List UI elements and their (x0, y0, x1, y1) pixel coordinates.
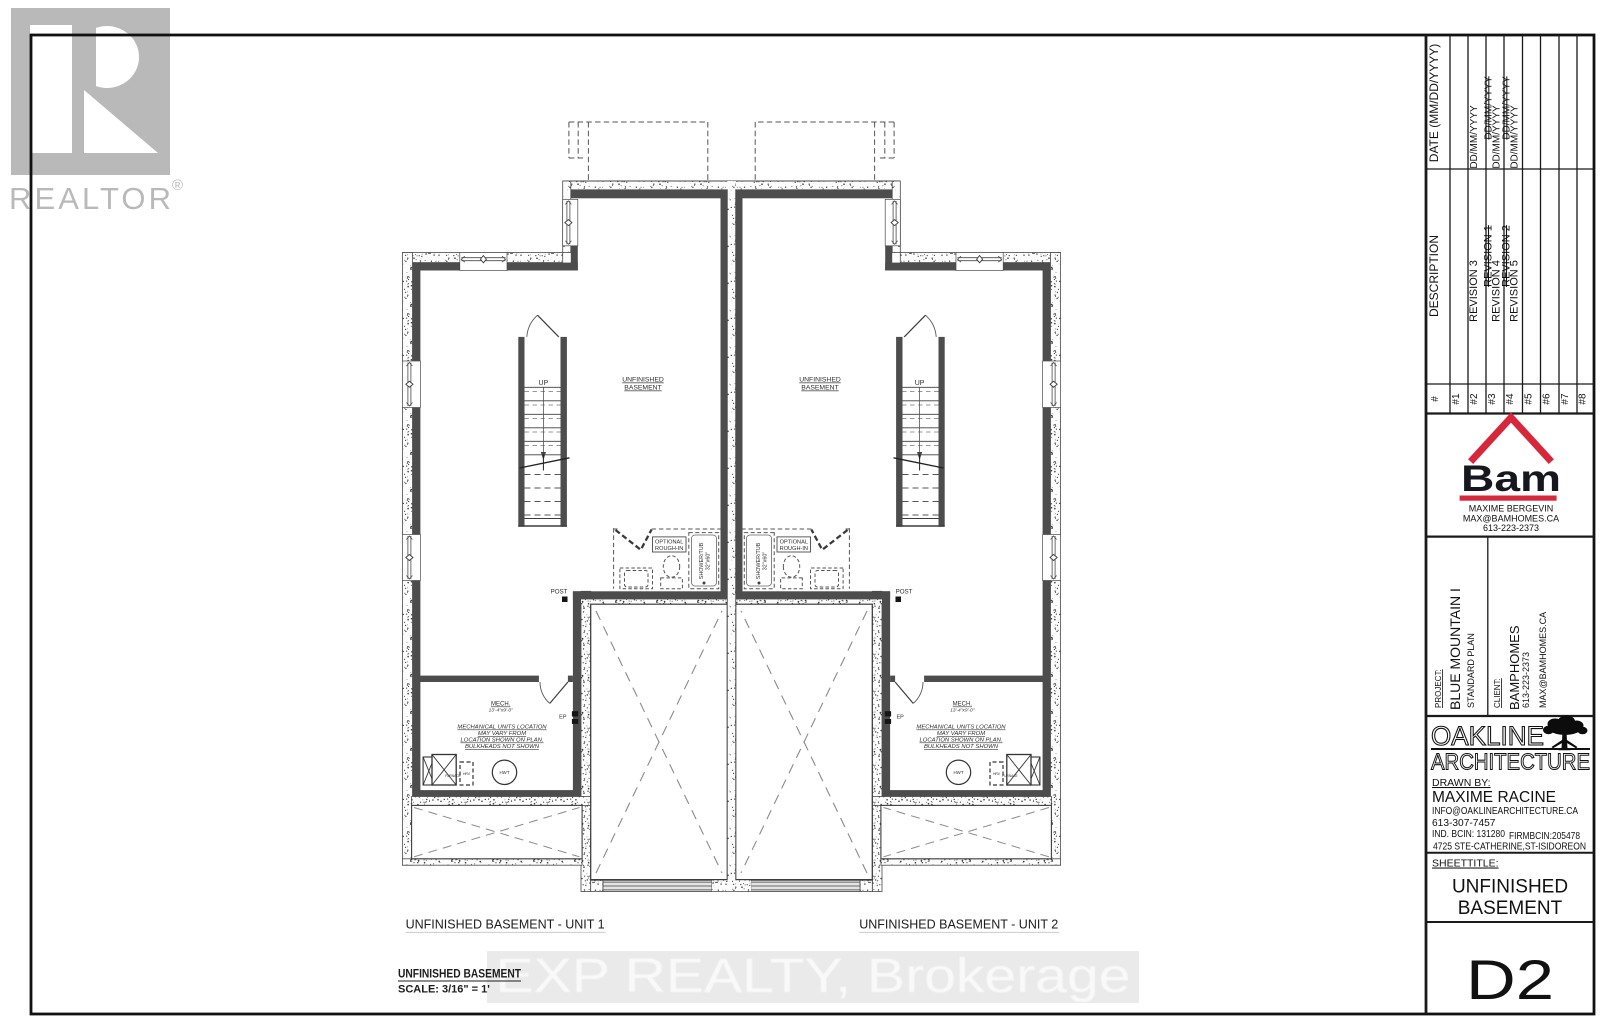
svg-text:BULKHEADS NOT SHOWN: BULKHEADS NOT SHOWN (924, 744, 999, 750)
svg-text:UP: UP (539, 380, 549, 387)
svg-text:#: # (1430, 396, 1441, 402)
svg-text:MECH.: MECH. (953, 702, 973, 708)
svg-text:UNFINISHED: UNFINISHED (799, 377, 841, 384)
svg-text:D2: D2 (1466, 948, 1554, 1011)
svg-text:OPTIONAL: OPTIONAL (655, 540, 683, 546)
svg-text:EP: EP (897, 715, 905, 721)
svg-text:DRAWN BY:: DRAWN BY: (1432, 777, 1491, 789)
svg-text:MAY VARY FROM: MAY VARY FROM (937, 731, 985, 737)
svg-text:UNFINISHED: UNFINISHED (622, 377, 664, 384)
svg-text:MAX@BAMHOMES.CA: MAX@BAMHOMES.CA (1538, 612, 1548, 708)
svg-text:613-223-2373: 613-223-2373 (1483, 523, 1539, 533)
svg-text:ROUGH-IN: ROUGH-IN (655, 546, 683, 552)
svg-text:UP: UP (915, 380, 925, 387)
svg-text:OPTIONAL: OPTIONAL (780, 540, 808, 546)
svg-text:FURNACE: FURNACE (445, 774, 460, 778)
svg-text:32"x60": 32"x60" (706, 552, 712, 571)
svg-text:Bam: Bam (1461, 458, 1561, 499)
svg-text:#5: #5 (1524, 393, 1535, 405)
svg-text:OAKLINE: OAKLINE (1431, 721, 1544, 751)
svg-text:BASEMENT: BASEMENT (801, 385, 838, 392)
svg-text:UNFINISHED BASEMENT - UNIT 2: UNFINISHED BASEMENT - UNIT 2 (859, 917, 1058, 932)
svg-text:13'-4"x9'-0": 13'-4"x9'-0" (489, 708, 513, 714)
svg-text:CLIENT:: CLIENT: (1493, 678, 1502, 708)
svg-text:MAXIME BERGEVIN: MAXIME BERGEVIN (1469, 504, 1554, 514)
svg-text:MAX@BAMHOMES.CA: MAX@BAMHOMES.CA (1463, 514, 1559, 524)
svg-text:LOCATION SHOWN ON PLAN.: LOCATION SHOWN ON PLAN. (460, 738, 543, 744)
svg-text:MAXIME RACINE: MAXIME RACINE (1432, 789, 1556, 806)
svg-text:FIRMBCIN:205478: FIRMBCIN:205478 (1509, 831, 1580, 842)
svg-text:ROUGH-IN: ROUGH-IN (780, 546, 808, 552)
svg-text:32"x60": 32"x60" (763, 552, 769, 571)
svg-text:INFO@OAKLINEARCHITECTURE.CA: INFO@OAKLINEARCHITECTURE.CA (1432, 806, 1578, 817)
svg-text:MECHANICAL UNITS LOCATION: MECHANICAL UNITS LOCATION (457, 725, 547, 731)
svg-text:UNFINISHED: UNFINISHED (1452, 877, 1568, 898)
svg-text:DD/MM/YYYY: DD/MM/YYYY (1469, 105, 1480, 169)
svg-text:#8: #8 (1578, 393, 1589, 405)
svg-text:®: ® (172, 177, 183, 194)
svg-text:#4: #4 (1505, 393, 1516, 405)
svg-text:DATE (MM/DD/YYYY): DATE (MM/DD/YYYY) (1427, 44, 1441, 162)
svg-text:ARCHITECTURE: ARCHITECTURE (1431, 749, 1590, 775)
svg-text:13'-4"x9'-0": 13'-4"x9'-0" (950, 708, 974, 714)
svg-text:LOCATION SHOWN ON PLAN.: LOCATION SHOWN ON PLAN. (919, 738, 1002, 744)
svg-text:UNFINISHED BASEMENT: UNFINISHED BASEMENT (398, 969, 521, 981)
svg-text:HWT: HWT (500, 770, 510, 775)
svg-text:613-307-7457: 613-307-7457 (1432, 818, 1496, 829)
svg-text:EXP REALTY, Brokerage: EXP REALTY, Brokerage (496, 950, 1131, 1003)
svg-text:4725 STE-CATHERINE,ST-ISIDOREO: 4725 STE-CATHERINE,ST-ISIDOREON (1433, 842, 1586, 853)
svg-text:#6: #6 (1542, 393, 1553, 405)
svg-text:SHOWER/TUB: SHOWER/TUB (699, 542, 705, 579)
svg-text:BASEMENT: BASEMENT (1458, 898, 1563, 919)
svg-text:POST: POST (896, 589, 913, 596)
svg-text:PROJECT:: PROJECT: (1434, 669, 1443, 708)
svg-text:BASEMENT: BASEMENT (624, 385, 661, 392)
svg-text:#1: #1 (1451, 393, 1462, 405)
svg-text:HRV: HRV (463, 772, 471, 776)
svg-text:IND. BCIN: 131280: IND. BCIN: 131280 (1432, 829, 1505, 840)
svg-text:SCALE: 3/16" = 1': SCALE: 3/16" = 1' (398, 984, 490, 996)
svg-text:HWT: HWT (954, 770, 964, 775)
svg-text:REALTOR: REALTOR (9, 181, 173, 216)
svg-text:#3: #3 (1487, 393, 1498, 405)
svg-text:MECH.: MECH. (491, 702, 511, 708)
svg-text:613-223-2373: 613-223-2373 (1521, 652, 1531, 708)
svg-text:#2: #2 (1469, 393, 1480, 405)
svg-text:DESCRIPTION: DESCRIPTION (1427, 235, 1441, 317)
svg-text:#7: #7 (1560, 393, 1571, 405)
svg-text:UNFINISHED BASEMENT - UNIT 1: UNFINISHED BASEMENT - UNIT 1 (406, 917, 605, 932)
svg-text:POST: POST (551, 589, 568, 596)
svg-text:SHEETTITLE:: SHEETTITLE: (1432, 858, 1499, 870)
svg-text:BAMPHOMES: BAMPHOMES (1507, 625, 1522, 710)
svg-text:HRV: HRV (993, 772, 1001, 776)
svg-text:FURNACE: FURNACE (1002, 774, 1017, 778)
svg-text:DD/MM/YYYY: DD/MM/YYYY (1510, 105, 1521, 169)
svg-text:SHOWER/TUB: SHOWER/TUB (756, 542, 762, 579)
svg-text:BLUE MOUNTAIN I: BLUE MOUNTAIN I (1447, 588, 1463, 710)
svg-text:MAY VARY FROM: MAY VARY FROM (478, 731, 526, 737)
svg-text:MECHANICAL UNITS LOCATION: MECHANICAL UNITS LOCATION (916, 725, 1006, 731)
svg-text:BULKHEADS NOT SHOWN: BULKHEADS NOT SHOWN (465, 744, 540, 750)
svg-text:STANDARD PLAN: STANDARD PLAN (1466, 633, 1476, 708)
svg-text:EP: EP (559, 715, 567, 721)
svg-text:REVISION 3: REVISION 3 (1468, 260, 1480, 322)
svg-text:REVISION 5: REVISION 5 (1509, 260, 1521, 322)
